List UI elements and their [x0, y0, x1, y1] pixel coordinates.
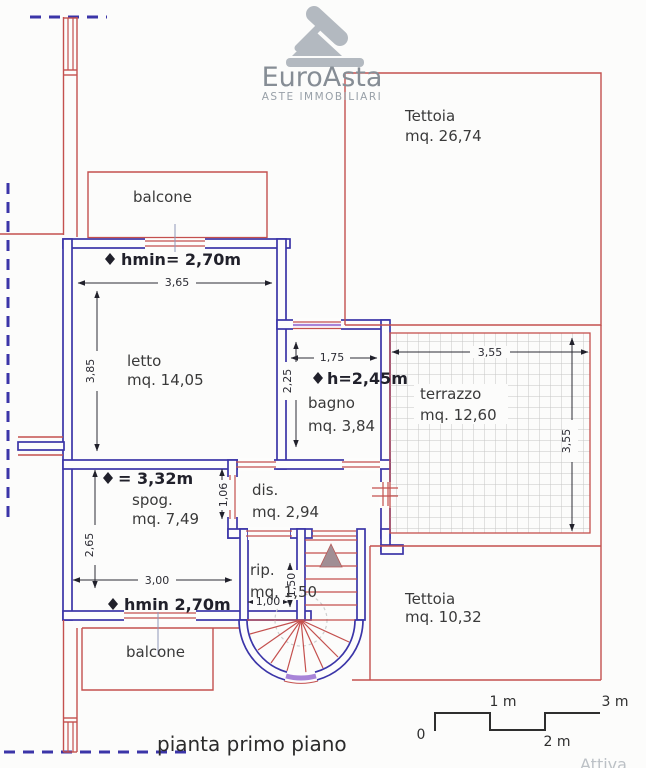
room-tettoia-bottom-area: mq. 10,32 — [405, 608, 482, 626]
stair-window-icon — [286, 676, 316, 678]
stair-direction-arrow-icon — [320, 544, 342, 567]
dim-terrazzo-width: 3,55 — [478, 346, 503, 359]
room-balcone-bottom-name: balcone — [126, 643, 185, 661]
dim-dis: 1,06 — [217, 483, 230, 508]
height-marker-icon — [108, 598, 118, 610]
dim-bagno-width: 1,75 — [320, 351, 345, 364]
room-bagno-name: bagno — [308, 394, 355, 412]
height-marker-icon — [313, 372, 323, 384]
floor-plan-drawing: 3,65 3,85 1,75 2,25 3,55 3,55 2,65 3,00 … — [0, 0, 646, 768]
gavel-icon — [286, 14, 364, 67]
scale-bar: 0 1 m 2 m 3 m — [417, 694, 629, 750]
dim-terrazzo-height: 3,55 — [560, 429, 573, 454]
top-pillar-window-icon — [64, 17, 78, 237]
scale-label-2m: 2 m — [544, 734, 571, 750]
logo-subtitle: ASTE IMMOBILIARI — [262, 91, 383, 103]
room-spog-name: spog. — [132, 491, 173, 509]
scale-label-0: 0 — [417, 727, 426, 743]
watermark-text: Attiva — [580, 755, 627, 768]
room-tettoia-bottom-name: Tettoia — [404, 590, 455, 608]
room-tettoia-top-name: Tettoia — [404, 107, 455, 125]
scale-label-1m: 1 m — [490, 694, 517, 710]
dim-bagno-height: 2,25 — [281, 369, 294, 394]
room-letto-area: mq. 14,05 — [127, 371, 204, 389]
room-rip-name: rip. — [250, 561, 275, 579]
room-balcone-top-name: balcone — [133, 188, 192, 206]
height-marker-icon — [105, 253, 115, 265]
room-terrazzo-area: mq. 12,60 — [420, 406, 497, 424]
logo: EuroAsta ASTE IMMOBILIARI — [262, 14, 383, 103]
stair-entry-door-icon — [312, 531, 356, 536]
dim-letto-height: 3,85 — [84, 359, 97, 384]
dim-spog-width: 3,00 — [145, 574, 170, 587]
spog-hmin-label: hmin 2,70m — [124, 595, 231, 614]
spog-h-label: = 3,32m — [118, 469, 193, 488]
height-marker-icon — [103, 472, 113, 484]
room-spog-area: mq. 7,49 — [132, 510, 199, 528]
letto-hmin-label: hmin= 2,70m — [121, 250, 241, 269]
room-letto-name: letto — [127, 352, 161, 370]
room-bagno-area: mq. 3,84 — [308, 417, 375, 435]
tettoia-top-outline — [345, 73, 601, 325]
room-dis-name: dis. — [252, 481, 278, 499]
room-rip-area: mq. 1,50 — [250, 583, 317, 601]
dim-letto-width: 3,65 — [165, 276, 190, 289]
floor-plan-page: 3,65 3,85 1,75 2,25 3,55 3,55 2,65 3,00 … — [0, 0, 646, 768]
bagno-h-label: h=2,45m — [327, 369, 408, 388]
scale-label-3m: 3 m — [602, 694, 629, 710]
bottom-pillar-window-icon — [64, 620, 78, 752]
room-terrazzo-name: terrazzo — [420, 385, 481, 403]
room-dis-area: mq. 2,94 — [252, 503, 319, 521]
dim-spog-height: 2,65 — [83, 533, 96, 558]
room-labels: Tettoia mq. 26,74 balcone letto mq. 14,0… — [126, 107, 508, 661]
plan-title: pianta primo piano — [157, 732, 347, 756]
logo-brand: EuroAsta — [262, 62, 383, 93]
room-tettoia-top-area: mq. 26,74 — [405, 127, 482, 145]
